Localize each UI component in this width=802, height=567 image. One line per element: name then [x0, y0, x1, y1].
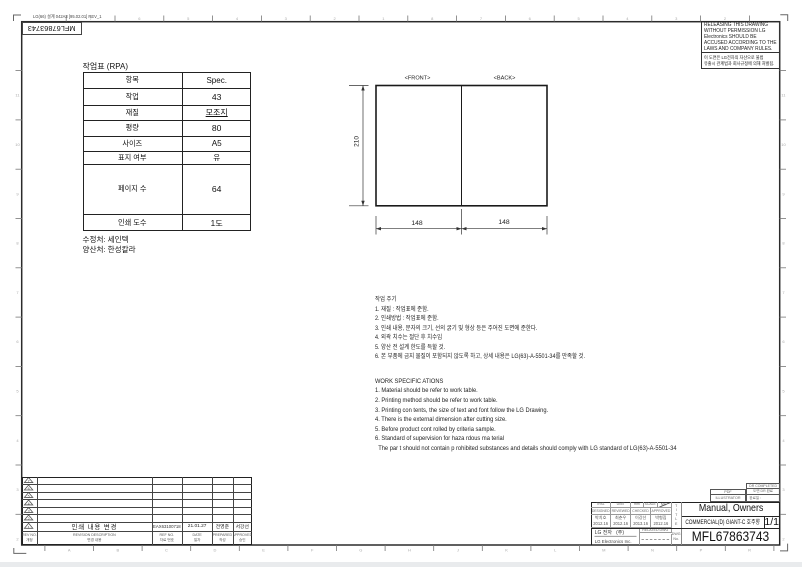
svg-text:F: F: [311, 548, 314, 553]
svg-text:E: E: [262, 548, 265, 553]
svg-text:8: 8: [431, 16, 434, 21]
svg-text:3: 3: [285, 16, 288, 21]
svg-text:1: 1: [382, 16, 385, 21]
svg-text:P: P: [700, 548, 703, 553]
svg-text:6: 6: [16, 339, 19, 344]
svg-text:R: R: [748, 548, 751, 553]
svg-text:5: 5: [187, 16, 190, 21]
svg-text:3: 3: [675, 16, 678, 21]
svg-text:D: D: [214, 548, 217, 553]
svg-text:2: 2: [333, 16, 336, 21]
svg-text:7: 7: [480, 16, 483, 21]
svg-text:6: 6: [529, 16, 532, 21]
svg-text:A: A: [68, 548, 71, 553]
svg-text:7: 7: [782, 290, 785, 295]
svg-text:11: 11: [781, 93, 786, 98]
svg-text:3: 3: [782, 487, 785, 492]
svg-text:M: M: [602, 548, 605, 553]
svg-text:7: 7: [16, 290, 19, 295]
svg-text:8: 8: [782, 241, 785, 246]
svg-text:G: G: [359, 548, 362, 553]
svg-text:4: 4: [626, 16, 629, 21]
svg-text:L: L: [554, 548, 557, 553]
svg-text:210: 210: [354, 136, 361, 147]
svg-text:3: 3: [16, 487, 19, 492]
svg-text:9: 9: [16, 191, 19, 196]
svg-text:148: 148: [498, 219, 510, 226]
svg-text:J: J: [457, 548, 459, 553]
svg-text:4: 4: [236, 16, 239, 21]
svg-text:5: 5: [16, 389, 19, 394]
svg-text:6: 6: [782, 339, 785, 344]
svg-text:5: 5: [577, 16, 580, 21]
svg-text:H: H: [408, 548, 411, 553]
svg-text:2: 2: [782, 536, 785, 541]
svg-text:9: 9: [782, 191, 785, 196]
svg-text:B: B: [116, 548, 119, 553]
svg-text:2: 2: [16, 536, 19, 541]
svg-text:C: C: [165, 548, 168, 553]
svg-text:11: 11: [15, 93, 20, 98]
svg-text:8: 8: [16, 241, 19, 246]
svg-text:5: 5: [782, 389, 785, 394]
svg-text:N: N: [651, 548, 654, 553]
svg-text:<BACK>: <BACK>: [494, 76, 516, 82]
svg-text:4: 4: [782, 438, 785, 443]
svg-text:6: 6: [138, 16, 141, 21]
svg-text:10: 10: [15, 142, 20, 147]
svg-text:4: 4: [16, 438, 19, 443]
svg-text:<FRONT>: <FRONT>: [405, 76, 431, 82]
svg-text:148: 148: [411, 220, 423, 227]
svg-text:10: 10: [781, 142, 786, 147]
svg-text:K: K: [505, 548, 508, 553]
svg-text:2: 2: [724, 16, 727, 21]
